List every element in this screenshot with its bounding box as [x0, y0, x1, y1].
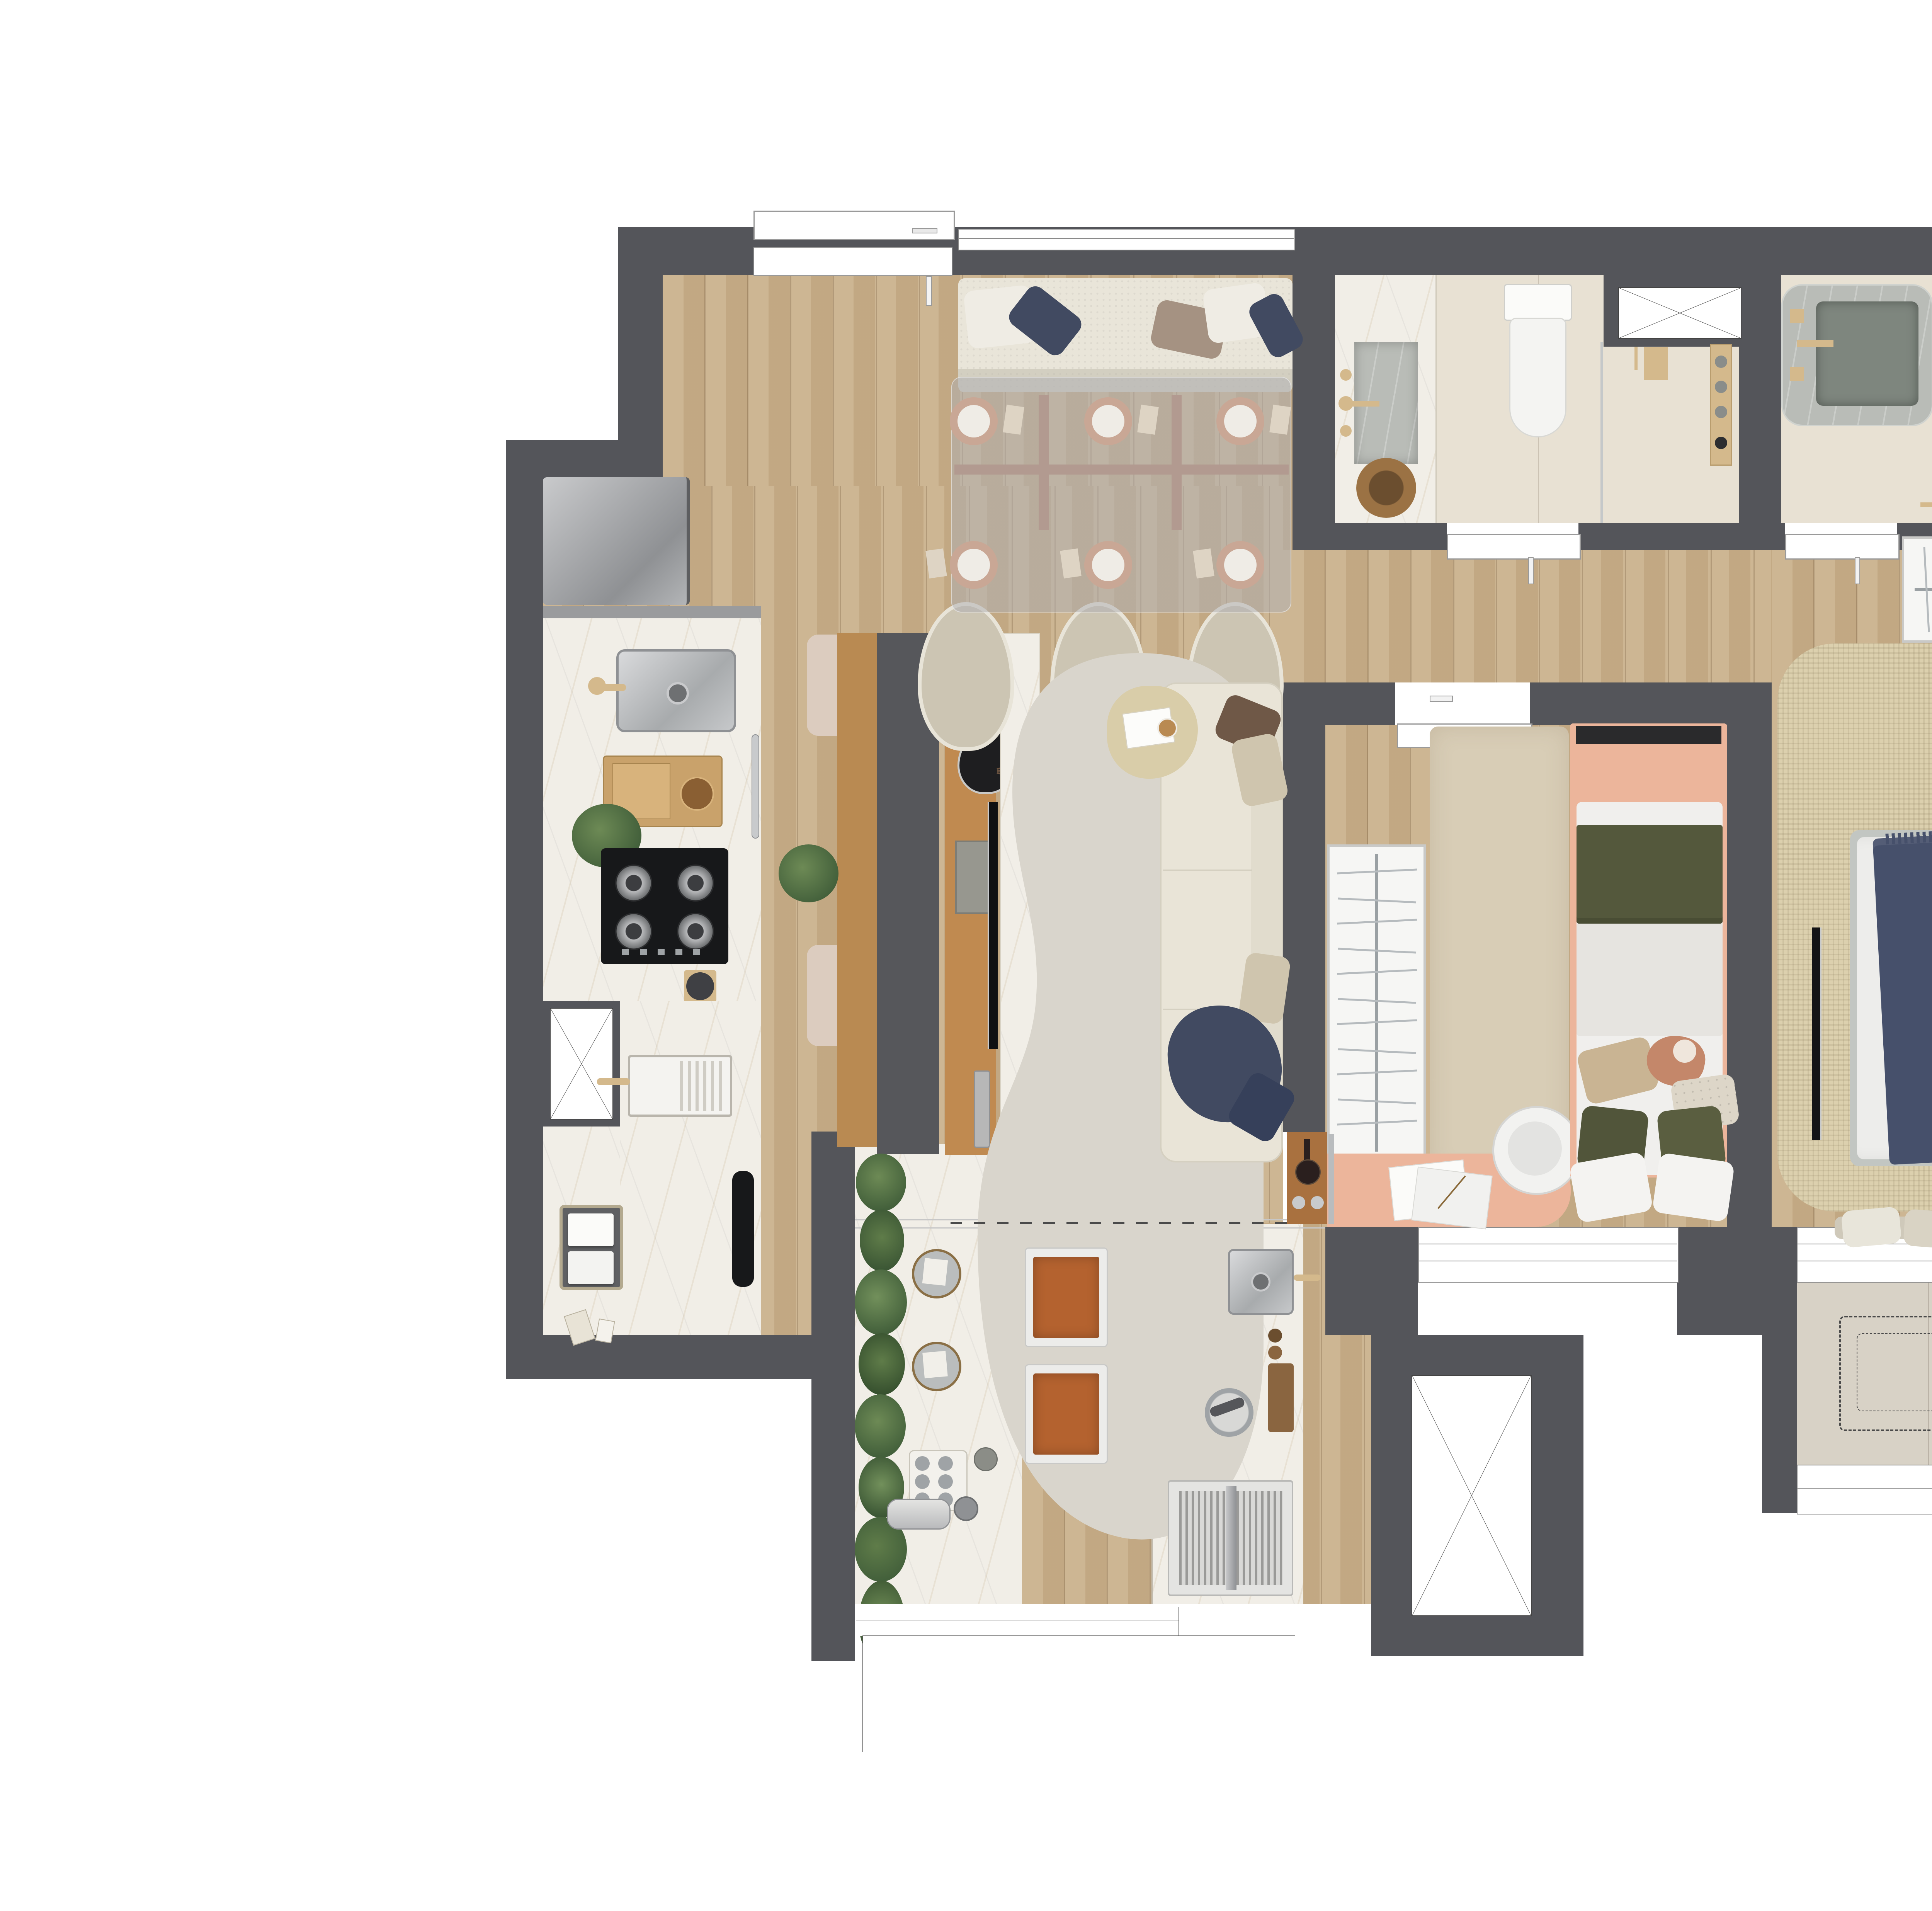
folded-towel	[568, 1213, 614, 1246]
bed2-pillow-white	[1652, 1152, 1735, 1222]
wall-kitchen-bottom	[506, 1335, 837, 1379]
wall-master-balcony-left	[1762, 1227, 1797, 1513]
desk-paper	[1411, 1167, 1493, 1230]
cooktop-knobs	[622, 949, 711, 955]
island-bench	[807, 945, 838, 1046]
kitchen-faucet-base	[588, 677, 606, 695]
bath1-toilet-tank	[1504, 284, 1572, 321]
cup	[915, 1456, 930, 1471]
balcony-faucet	[1294, 1275, 1321, 1281]
bath1-shower-arm	[1634, 347, 1638, 370]
bench-pillow	[1841, 1206, 1902, 1248]
planter-plant	[855, 1394, 906, 1458]
napkin	[1060, 548, 1082, 579]
place-setting-plate	[1092, 549, 1124, 581]
bath1-decor-bowl	[1356, 458, 1416, 518]
side-table-cup	[1157, 718, 1177, 738]
sliding-door-post	[1328, 1134, 1334, 1224]
bedroom2-window	[1418, 1227, 1679, 1283]
glassware	[1311, 1196, 1324, 1209]
vacuum-cleaner	[732, 1171, 754, 1287]
bath2-faucet	[1790, 309, 1804, 323]
bath2-faucet-bar	[1797, 340, 1833, 347]
bath1-shelf-item	[1715, 406, 1727, 418]
sliding-door-dashes	[951, 1222, 1318, 1224]
bathroom1-door-handle	[1528, 557, 1534, 584]
bathroom2-door-leaf	[1785, 534, 1900, 560]
coffee-grinder	[954, 1496, 978, 1521]
spice-jar	[1268, 1329, 1282, 1343]
wall-bath-south	[1335, 523, 1447, 550]
wall-balcony-left	[811, 1132, 855, 1661]
wall-left	[506, 486, 543, 1379]
shaft-x-bath1	[1619, 288, 1741, 338]
burner	[677, 864, 714, 902]
entry-door-handle-inner	[926, 276, 932, 306]
bath1-shelf-item	[1715, 381, 1727, 393]
wine-bottle-neck	[1304, 1139, 1310, 1162]
laundry-washboard	[680, 1061, 726, 1111]
bath1-faucet-spout	[1345, 401, 1379, 407]
planter-plant	[860, 1210, 904, 1271]
master-balcony-parapet	[1797, 1465, 1932, 1515]
spice-jar	[1268, 1346, 1282, 1360]
bedroom2-window-line	[1418, 1244, 1677, 1244]
bench-pillow	[1903, 1209, 1932, 1249]
bar-stool-leather	[1033, 1373, 1099, 1455]
bathroom2-door-handle	[1855, 557, 1860, 584]
parapet-line	[1797, 1488, 1932, 1489]
oven-handle	[752, 734, 759, 839]
floor-hallway	[1283, 550, 1808, 682]
burner	[615, 864, 652, 902]
dining-window-line	[958, 238, 1294, 239]
waste-bin	[686, 972, 714, 1000]
balcony-napkin	[922, 1258, 948, 1286]
shaft-x-center	[1412, 1376, 1531, 1615]
refrigerator	[543, 477, 690, 605]
grill-center-bar	[1226, 1486, 1236, 1590]
wall-bathzone-left	[1293, 275, 1335, 550]
master-window-line	[1797, 1261, 1932, 1261]
laundry-faucet	[597, 1078, 630, 1085]
bath2-faucet	[1790, 367, 1804, 381]
wall-left-upper	[618, 227, 663, 440]
desk-chair-seat	[1508, 1121, 1562, 1176]
bathroom1-door-leaf	[1447, 534, 1581, 560]
bath2-towel-rail	[1920, 502, 1932, 507]
bath1-shelf-item	[1715, 356, 1727, 368]
coffee-machine	[887, 1499, 951, 1530]
kitchen-shaft-x	[551, 1009, 612, 1119]
entry-threshold	[753, 247, 952, 276]
planter-plant	[856, 1154, 906, 1212]
floor-plan	[0, 0, 1932, 1911]
ac-condenser-inner	[1857, 1333, 1932, 1411]
place-setting-plate	[1224, 549, 1257, 581]
balcony-slab-band	[856, 1604, 1212, 1621]
plush-toy-face	[1673, 1040, 1696, 1063]
entry-door-leaf	[753, 211, 955, 240]
place-setting-plate	[1092, 405, 1124, 437]
grill-grate	[1179, 1491, 1226, 1585]
island-bench	[807, 635, 838, 736]
entry-door-handle	[912, 228, 937, 233]
place-setting-plate	[957, 405, 990, 437]
balcony-slab-band	[856, 1620, 1212, 1636]
cup	[938, 1474, 953, 1489]
balcony-vase	[974, 1447, 998, 1471]
bath1-faucet-knob	[1340, 369, 1352, 381]
burner	[615, 913, 652, 950]
bath1-faucet-knob	[1340, 425, 1352, 437]
bedroom2-door-handle	[1430, 696, 1453, 702]
kitchen-sink-drain	[667, 682, 689, 705]
grill-grate	[1236, 1491, 1283, 1585]
planter-plant	[855, 1269, 907, 1335]
wall-bath-mid	[1739, 275, 1781, 550]
glassware	[1292, 1196, 1305, 1209]
cup	[938, 1456, 953, 1471]
bar-stool-leather	[1033, 1257, 1099, 1338]
dining-window	[958, 229, 1295, 250]
bedroom2-hanger-rod	[1331, 850, 1422, 1157]
bath2-sink-inset	[1816, 301, 1918, 406]
place-setting-plate	[957, 549, 990, 581]
bed2-shelf-black	[1576, 726, 1721, 744]
bed2-olive-blanket	[1577, 825, 1723, 924]
folded-towel	[568, 1251, 614, 1284]
place-setting-plate	[1224, 405, 1257, 437]
kitchen-counter-edge	[543, 606, 761, 619]
snack-bowl	[680, 777, 714, 811]
bedroom2-window-line	[1418, 1261, 1677, 1261]
bath1-shower-glass	[1600, 342, 1603, 523]
neighbor-slab-outline	[862, 1635, 1295, 1752]
sofa-seam	[1163, 870, 1252, 871]
bath1-shower-panel	[1644, 347, 1668, 380]
wall-bedroom2-west-south	[1325, 1227, 1418, 1335]
wall-bath-south	[1578, 523, 1785, 550]
master-wall-tv	[1812, 927, 1821, 1140]
bed2-duvet	[1577, 924, 1723, 1036]
bath1-shelf-item	[1715, 437, 1727, 449]
island-wood-counter	[837, 633, 877, 1147]
burner	[677, 913, 714, 950]
closet-hanger-rod-top	[1909, 540, 1932, 639]
napkin	[925, 548, 947, 579]
wall-bedroom2-south-right	[1677, 1227, 1727, 1335]
cup	[915, 1474, 930, 1489]
wall-bedroom2-top	[1325, 682, 1395, 725]
balcony-sink-drain	[1251, 1272, 1270, 1292]
island-plant	[779, 844, 838, 902]
wine-bottle	[1295, 1159, 1321, 1185]
bath1-toilet-bowl	[1509, 318, 1566, 437]
planter-plant	[859, 1333, 905, 1395]
wall-bedroom2-top	[1530, 682, 1727, 725]
gas-cooktop	[601, 848, 728, 964]
cutting-board	[1268, 1363, 1294, 1432]
balcony-napkin	[922, 1351, 948, 1378]
napkin	[1193, 548, 1214, 579]
